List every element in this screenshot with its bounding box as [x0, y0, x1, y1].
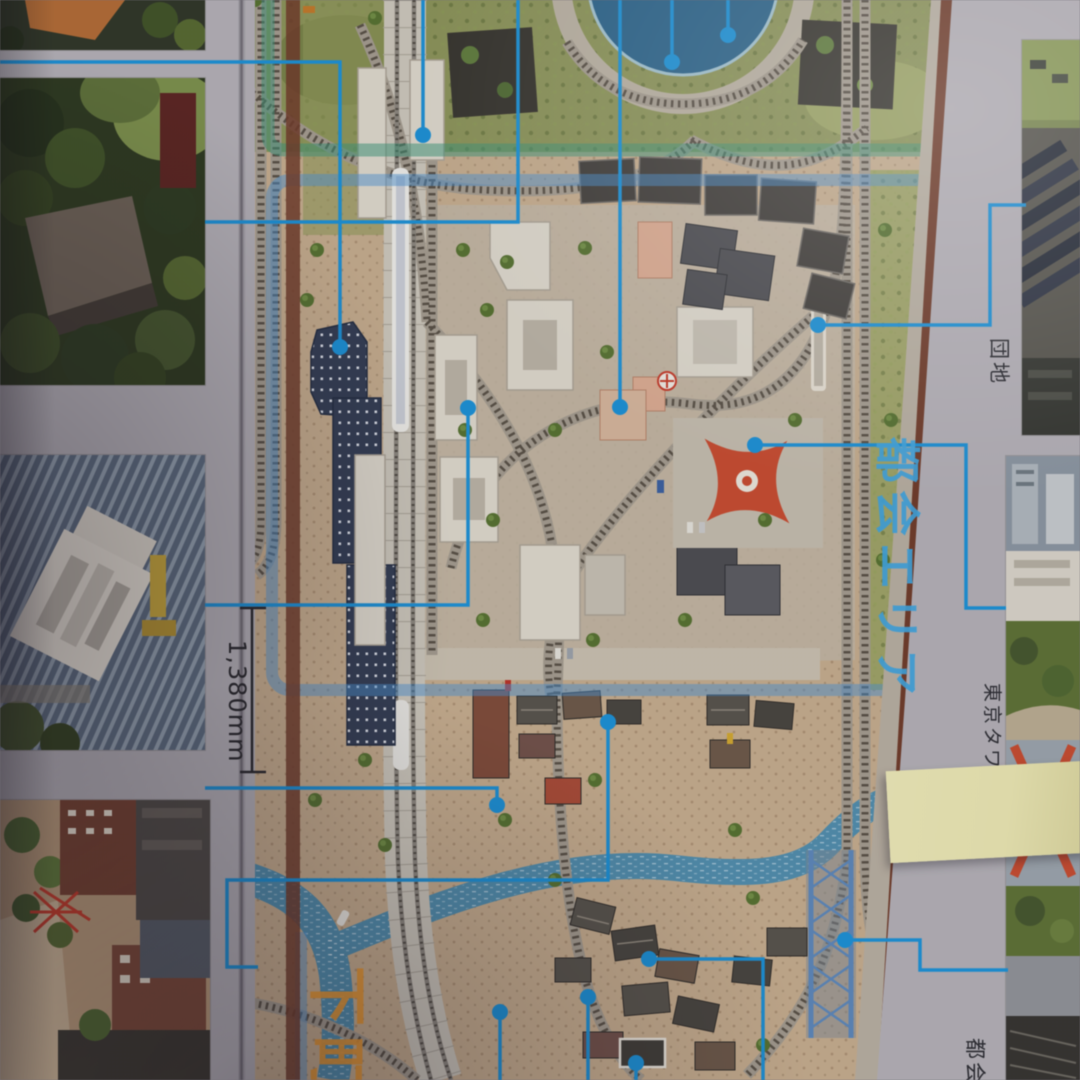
leader-dots: [332, 27, 853, 1071]
tokai-callout-label: 都会: [964, 1038, 985, 1080]
sticky-note: [886, 761, 1080, 863]
urban-area-zone-label: 都会エリア: [874, 437, 920, 702]
danchi-callout-label: 団地: [988, 338, 1009, 386]
magazine-page-photo: 都会エリア 下町 団地 東京タワー 都会 1,380mm: [0, 0, 1080, 1080]
dimension-label: 1,380mm: [225, 640, 249, 762]
downtown-zone-label: 下町: [306, 966, 366, 1080]
